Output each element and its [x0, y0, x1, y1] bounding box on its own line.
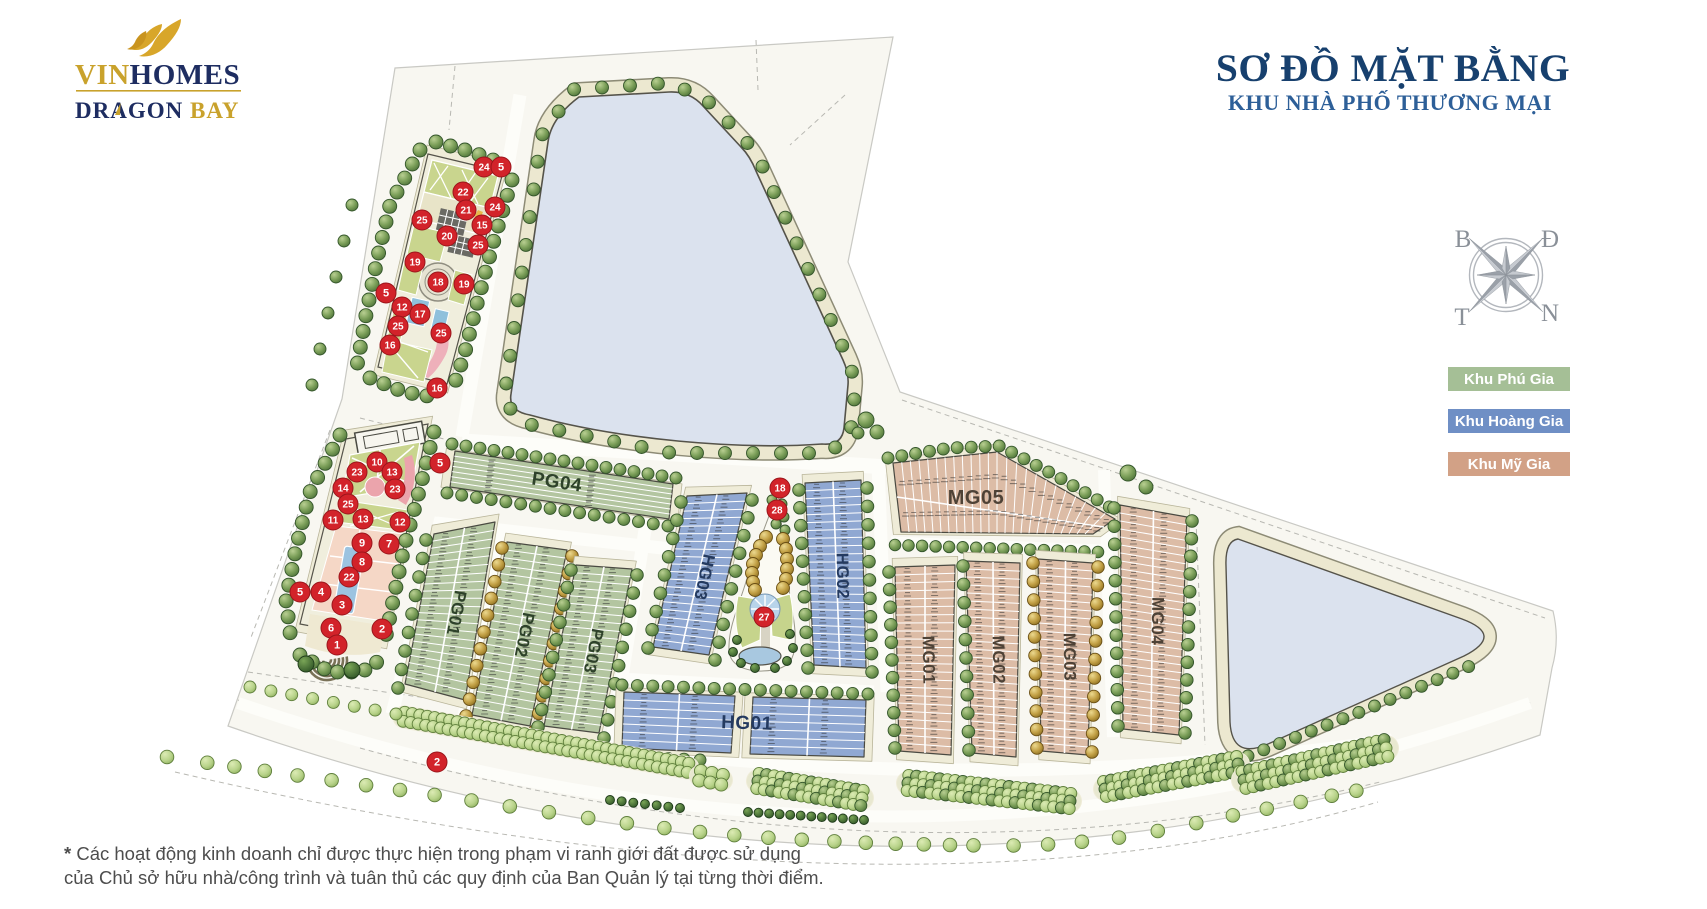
svg-text:VINHOMES: VINHOMES [75, 59, 240, 91]
svg-text:23: 23 [351, 468, 363, 479]
svg-text:2: 2 [379, 624, 385, 636]
svg-text:21: 21 [460, 206, 472, 217]
svg-text:18: 18 [774, 484, 786, 495]
svg-text:Đ: Đ [1541, 226, 1559, 253]
svg-text:Khu Hoàng Gia: Khu Hoàng Gia [1455, 413, 1564, 430]
svg-text:Khu Phú Gia: Khu Phú Gia [1464, 371, 1555, 388]
svg-text:16: 16 [431, 384, 443, 395]
svg-text:19: 19 [409, 258, 421, 269]
svg-text:20: 20 [441, 232, 453, 243]
svg-text:của Chủ sở hữu nhà/công trình: của Chủ sở hữu nhà/công trình và tuân th… [64, 867, 824, 888]
svg-text:16: 16 [384, 341, 396, 352]
svg-text:Khu Mỹ Gia: Khu Mỹ Gia [1468, 456, 1551, 473]
svg-text:KHU NHÀ PHỐ THƯƠNG MẠI: KHU NHÀ PHỐ THƯƠNG MẠI [1228, 90, 1552, 115]
svg-text:22: 22 [457, 188, 469, 199]
svg-text:17: 17 [414, 310, 426, 321]
svg-text:10: 10 [371, 458, 383, 469]
svg-text:4: 4 [318, 587, 325, 599]
svg-text:25: 25 [342, 500, 354, 511]
svg-text:* Các hoạt động kinh doanh chỉ: * Các hoạt động kinh doanh chỉ được thực… [64, 843, 801, 864]
svg-text:25: 25 [472, 241, 484, 252]
svg-text:MG04: MG04 [1148, 597, 1168, 646]
svg-text:28: 28 [771, 506, 783, 517]
svg-text:HG02: HG02 [833, 553, 853, 600]
svg-text:13: 13 [386, 468, 398, 479]
svg-text:HG01: HG01 [721, 712, 773, 735]
svg-text:6: 6 [328, 623, 334, 635]
svg-text:5: 5 [383, 288, 389, 300]
svg-text:5: 5 [297, 587, 303, 599]
svg-text:N: N [1541, 300, 1559, 327]
svg-text:9: 9 [359, 538, 365, 550]
svg-text:12: 12 [396, 303, 408, 314]
svg-text:5: 5 [437, 458, 443, 470]
svg-text:24: 24 [478, 163, 490, 174]
svg-text:22: 22 [343, 573, 355, 584]
svg-text:11: 11 [328, 516, 339, 527]
svg-text:18: 18 [432, 278, 444, 289]
svg-text:3: 3 [339, 600, 345, 612]
svg-text:25: 25 [435, 329, 447, 340]
svg-text:23: 23 [389, 485, 401, 496]
svg-text:MG02: MG02 [989, 636, 1009, 685]
svg-text:1: 1 [334, 640, 340, 652]
svg-text:12: 12 [394, 518, 406, 529]
svg-text:25: 25 [416, 216, 428, 227]
svg-text:25: 25 [392, 322, 404, 333]
svg-text:MG03: MG03 [1060, 633, 1080, 682]
svg-text:5: 5 [498, 162, 504, 174]
svg-text:DRAGON BAY: DRAGON BAY [75, 98, 239, 123]
svg-text:13: 13 [357, 515, 369, 526]
svg-text:T: T [1454, 304, 1469, 331]
svg-text:27: 27 [758, 613, 770, 624]
svg-text:14: 14 [337, 484, 349, 495]
svg-text:8: 8 [359, 557, 365, 569]
svg-text:MG05: MG05 [948, 487, 1004, 509]
svg-text:B: B [1455, 226, 1472, 253]
svg-text:24: 24 [489, 203, 501, 214]
svg-text:15: 15 [476, 221, 488, 232]
svg-text:SƠ ĐỒ MẶT BẰNG: SƠ ĐỒ MẶT BẰNG [1216, 44, 1570, 90]
svg-text:2: 2 [434, 757, 440, 769]
svg-text:19: 19 [458, 280, 470, 291]
svg-text:MG01: MG01 [919, 636, 939, 685]
svg-text:7: 7 [386, 539, 392, 551]
